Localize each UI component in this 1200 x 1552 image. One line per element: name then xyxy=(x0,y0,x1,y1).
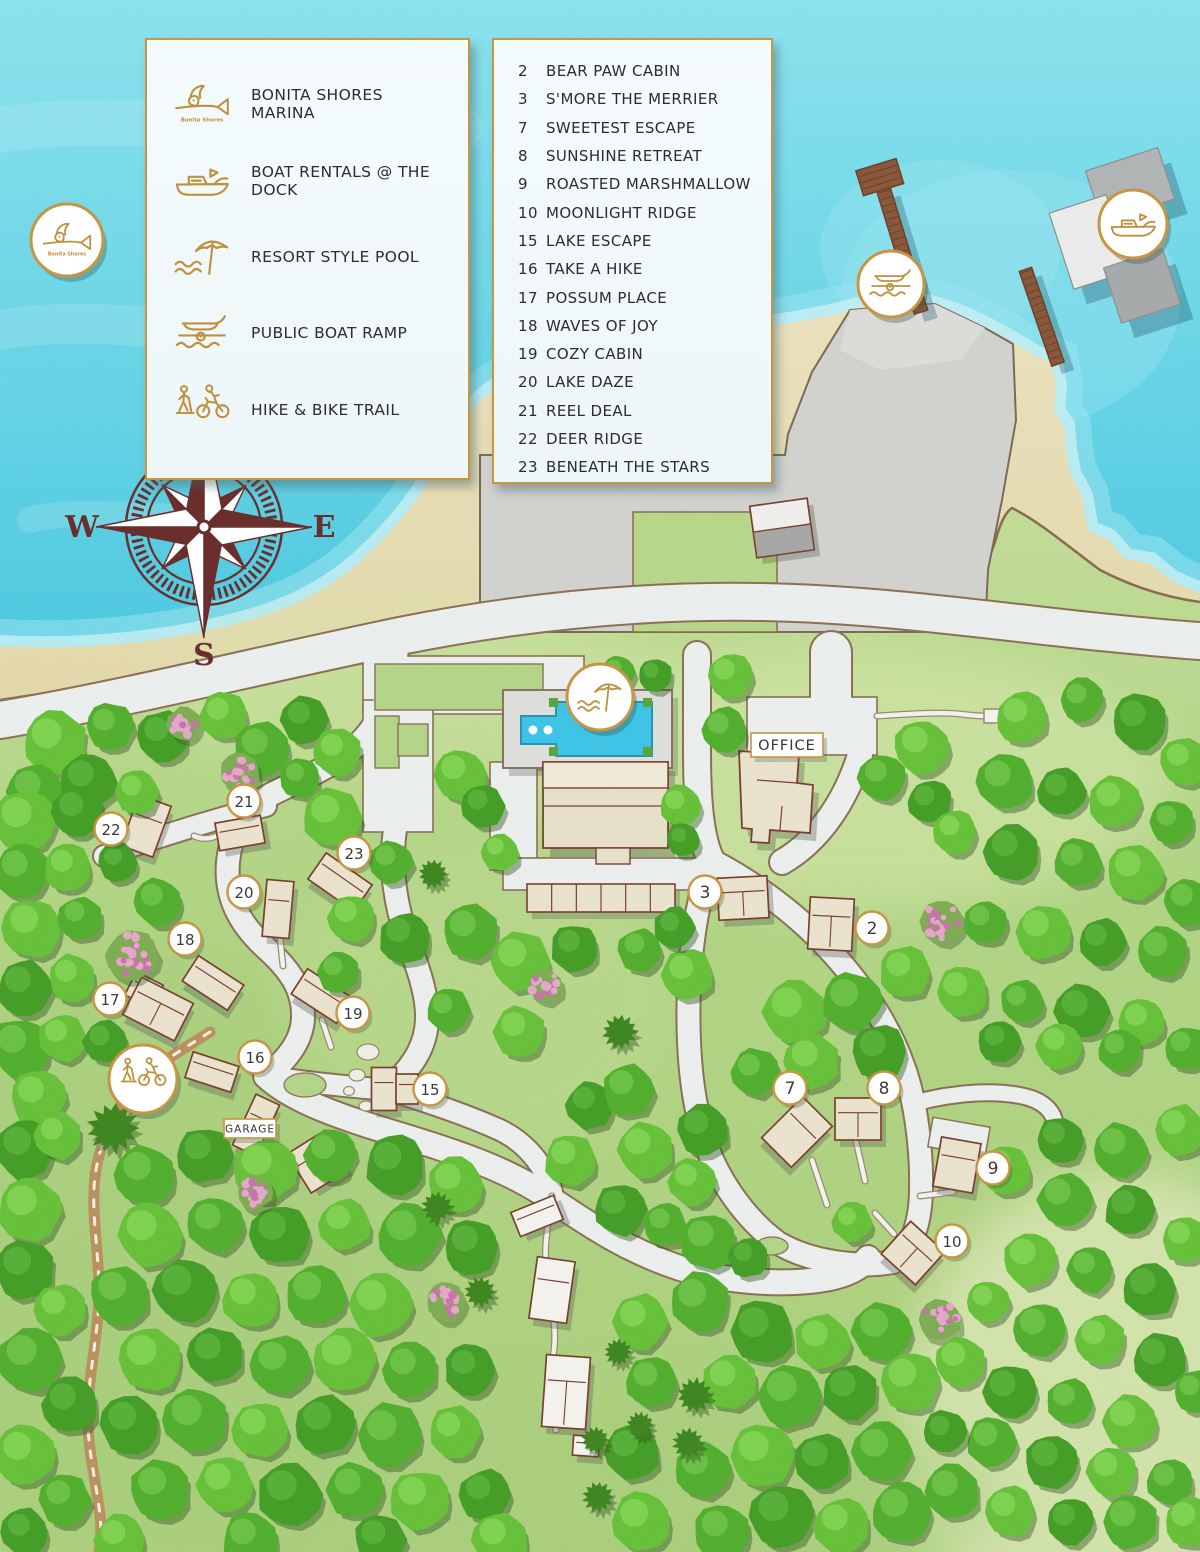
cabin-list-row: 19COZY CABIN xyxy=(510,340,761,368)
cabin-number: 15 xyxy=(510,232,546,250)
cabin-badge-number: 17 xyxy=(100,991,119,1009)
cabin-name: TAKE A HIKE xyxy=(546,260,643,278)
cabin-list-row: 16TAKE A HIKE xyxy=(510,255,761,283)
hike-bike-badge xyxy=(109,1045,177,1113)
cabin-list-row: 10MOONLIGHT RIDGE xyxy=(510,198,761,226)
legend-panel: BONITA SHORES MARINABOAT RENTALS @ THE D… xyxy=(145,38,470,480)
legend-item-pool: RESORT STYLE POOL xyxy=(169,227,450,287)
compass-s: S xyxy=(193,638,215,673)
boat-rental-badge xyxy=(1099,190,1167,258)
legend-label: BOAT RENTALS @ THE DOCK xyxy=(251,163,450,199)
cabin-badge-number: 8 xyxy=(879,1079,890,1099)
legend-item-boat-rental: BOAT RENTALS @ THE DOCK xyxy=(169,151,450,211)
legend-item-marina-logo: BONITA SHORES MARINA xyxy=(169,74,450,134)
cabin-number: 21 xyxy=(510,402,546,420)
legend-item-hike-bike: HIKE & BIKE TRAIL xyxy=(169,380,450,440)
cabin-list-row: 9ROASTED MARSHMALLOW xyxy=(510,170,761,198)
cabin-number: 7 xyxy=(510,119,546,137)
cabin-number: 8 xyxy=(510,147,546,165)
cabin-list-row: 23BENEATH THE STARS xyxy=(510,453,761,481)
boat-ramp-icon xyxy=(169,303,235,363)
cabin-number: 9 xyxy=(510,175,546,193)
cabin-number: 22 xyxy=(510,430,546,448)
office-label: OFFICE xyxy=(758,738,816,754)
cabin-name: S'MORE THE MERRIER xyxy=(546,90,719,108)
cabin-name: COZY CABIN xyxy=(546,345,643,363)
cabin-number: 17 xyxy=(510,289,546,307)
cabin-number: 16 xyxy=(510,260,546,278)
legend-label: HIKE & BIKE TRAIL xyxy=(251,401,399,419)
cabin-name: ROASTED MARSHMALLOW xyxy=(546,175,751,193)
cabin-badge-number: 2 xyxy=(867,919,878,939)
legend-label: RESORT STYLE POOL xyxy=(251,248,419,266)
cabin-badge-number: 3 xyxy=(700,883,711,903)
cabin-list-row: 3S'MORE THE MERRIER xyxy=(510,85,761,113)
cabin-name: LAKE DAZE xyxy=(546,373,634,391)
cabin-list-row: 18WAVES OF JOY xyxy=(510,312,761,340)
cabin-list-row: 7SWEETEST ESCAPE xyxy=(510,114,761,142)
legend-label: BONITA SHORES MARINA xyxy=(251,86,450,122)
cabin-name: WAVES OF JOY xyxy=(546,317,658,335)
compass-w: W xyxy=(64,510,100,545)
cabin-number: 19 xyxy=(510,345,546,363)
cabin-name: POSSUM PLACE xyxy=(546,289,667,307)
cabin-badge-number: 20 xyxy=(234,884,253,902)
cabin-list-row: 20LAKE DAZE xyxy=(510,368,761,396)
legend-item-boat-ramp: PUBLIC BOAT RAMP xyxy=(169,303,450,363)
cabin-name: LAKE ESCAPE xyxy=(546,232,652,250)
cabin-list-row: 17POSSUM PLACE xyxy=(510,283,761,311)
cabin-name: BEAR PAW CABIN xyxy=(546,62,681,80)
cabin-number: 2 xyxy=(510,62,546,80)
cabin-badge-number: 7 xyxy=(785,1079,796,1099)
cabin-list-row: 22DEER RIDGE xyxy=(510,425,761,453)
cabin-list-row: 8SUNSHINE RETREAT xyxy=(510,142,761,170)
cabin-badge-number: 10 xyxy=(942,1233,961,1251)
cabin-name: SWEETEST ESCAPE xyxy=(546,119,696,137)
cabin-number: 23 xyxy=(510,458,546,476)
boat-rental-icon xyxy=(169,151,235,211)
cabin-number: 18 xyxy=(510,317,546,335)
cabin-badge-number: 16 xyxy=(245,1049,264,1067)
cabin-badge-number: 18 xyxy=(175,931,194,949)
cabin-name: DEER RIDGE xyxy=(546,430,643,448)
hike-bike-icon xyxy=(169,380,235,440)
compass-e: E xyxy=(313,510,336,545)
cabin-number: 20 xyxy=(510,373,546,391)
cabin-list-row: 21REEL DEAL xyxy=(510,397,761,425)
cabin-list-panel: 2BEAR PAW CABIN3S'MORE THE MERRIER7SWEET… xyxy=(492,38,773,484)
marina-logo-icon xyxy=(169,74,235,134)
cabin-list-row: 2BEAR PAW CABIN xyxy=(510,57,761,85)
cabin-list-row: 15LAKE ESCAPE xyxy=(510,227,761,255)
pool-icon xyxy=(169,227,235,287)
garage-label: GARAGE xyxy=(225,1123,275,1135)
cabin-badge-number: 23 xyxy=(344,845,363,863)
cabin-badge-number: 15 xyxy=(420,1081,439,1099)
pool-badge xyxy=(567,664,633,730)
cabin-badge-number: 22 xyxy=(101,821,120,839)
cabin-number: 10 xyxy=(510,204,546,222)
cabin-name: SUNSHINE RETREAT xyxy=(546,147,702,165)
cabin-name: REEL DEAL xyxy=(546,402,632,420)
cabin-badge-number: 19 xyxy=(343,1005,362,1023)
marina-logo-badge xyxy=(31,204,103,276)
cabin-name: BENEATH THE STARS xyxy=(546,458,710,476)
cabin-name: MOONLIGHT RIDGE xyxy=(546,204,697,222)
cabin-badge-number: 21 xyxy=(234,793,253,811)
legend-label: PUBLIC BOAT RAMP xyxy=(251,324,407,342)
resort-map: Bonita Shores xyxy=(0,0,1200,1552)
cabin-badge-number: 9 xyxy=(988,1159,999,1179)
cabin-number: 3 xyxy=(510,90,546,108)
